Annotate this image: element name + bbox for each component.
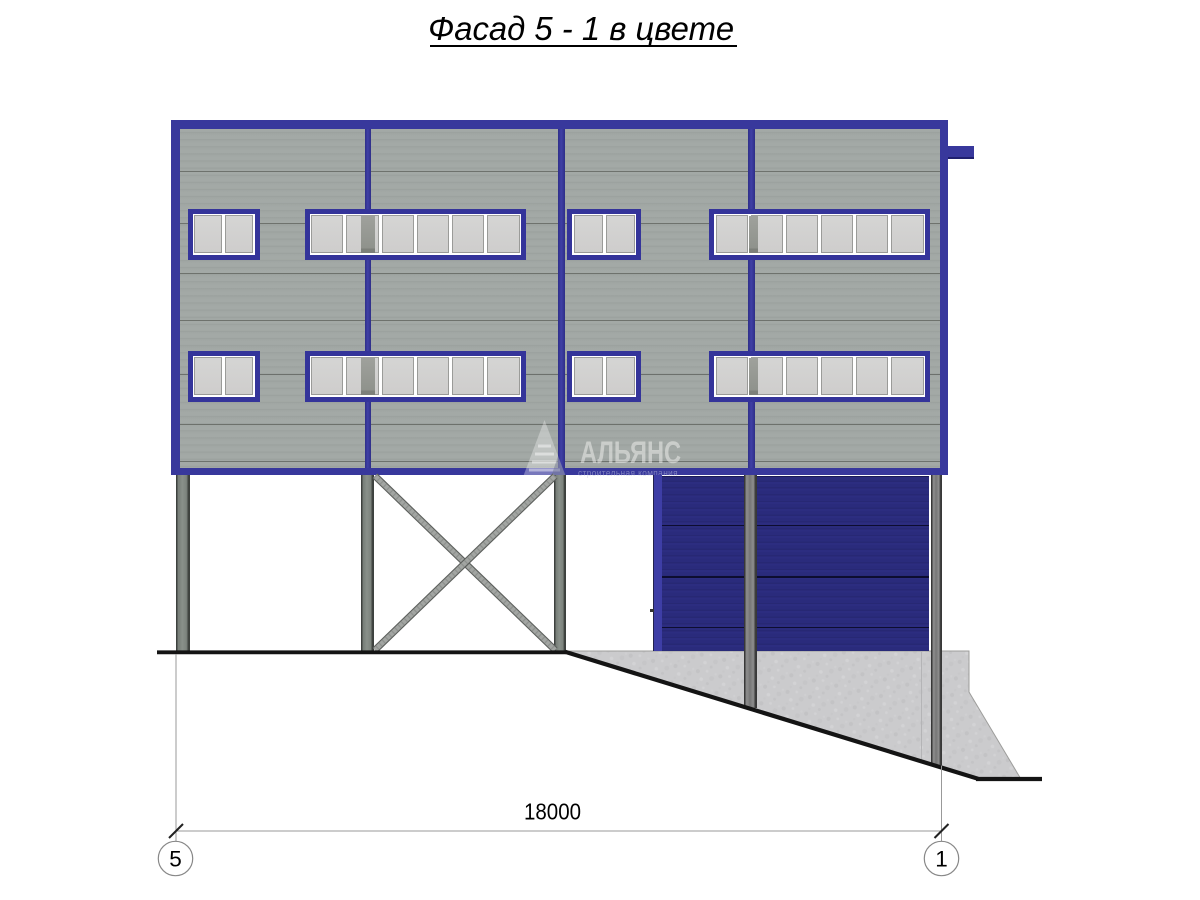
svg-text:5: 5: [169, 847, 182, 872]
svg-text:18000: 18000: [524, 799, 581, 825]
svg-text:1: 1: [935, 847, 948, 872]
